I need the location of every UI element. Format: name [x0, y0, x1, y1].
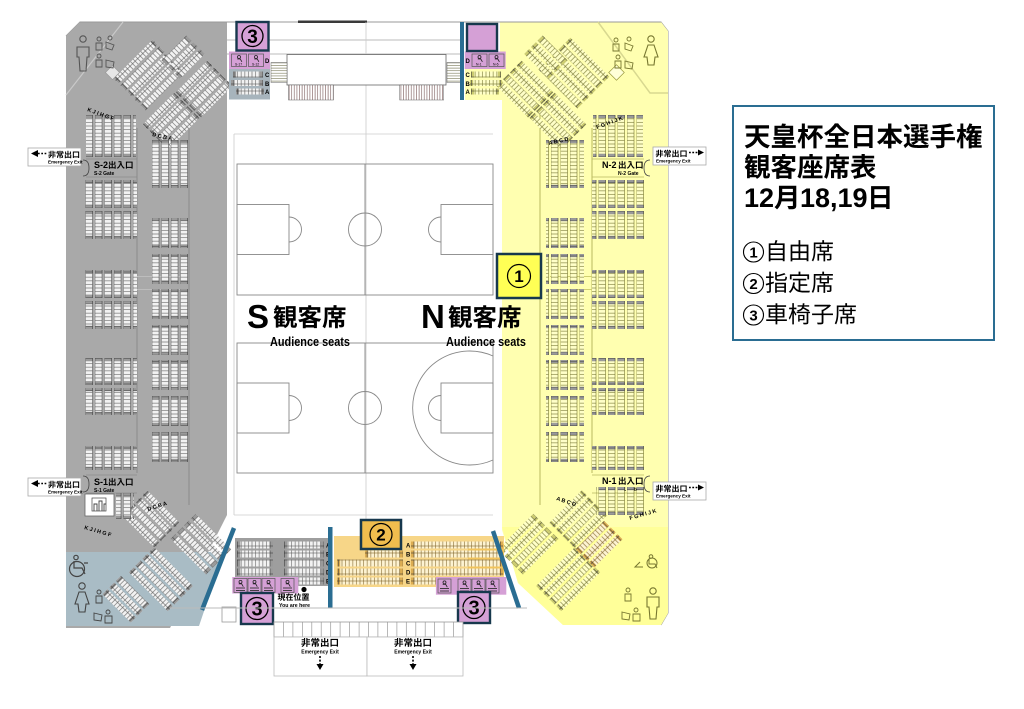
svg-text:Audience seats: Audience seats	[270, 335, 350, 349]
svg-text:B: B	[466, 82, 471, 88]
svg-text:B: B	[265, 82, 270, 88]
svg-text:S-12: S-12	[252, 63, 259, 67]
svg-text:1: 1	[514, 267, 523, 286]
svg-text:Emergency Exit: Emergency Exit	[48, 490, 83, 495]
svg-text:18,19: 18,19	[800, 183, 868, 213]
svg-text:C: C	[406, 562, 411, 568]
svg-text:1: 1	[749, 244, 757, 261]
svg-text:Audience seats: Audience seats	[446, 335, 526, 349]
svg-text:D: D	[406, 571, 411, 577]
svg-text:Emergency Exit: Emergency Exit	[656, 159, 691, 164]
svg-text:S-2 Gate: S-2 Gate	[94, 171, 115, 177]
svg-text:S-1 Gate: S-1 Gate	[94, 488, 115, 494]
svg-text:A: A	[466, 90, 471, 96]
svg-text:3: 3	[251, 599, 262, 621]
svg-text:N-1: N-1	[476, 63, 482, 67]
svg-text:A: A	[265, 90, 270, 96]
svg-text:N: N	[421, 298, 445, 335]
svg-text:2: 2	[376, 526, 385, 545]
svg-text:S: S	[247, 298, 269, 335]
svg-text:E: E	[406, 580, 410, 586]
svg-text:N-1: N-1	[602, 476, 617, 486]
svg-text:B: B	[406, 553, 411, 559]
svg-text:12: 12	[744, 183, 774, 213]
svg-text:3: 3	[247, 27, 258, 48]
svg-text:S-17: S-17	[235, 63, 242, 67]
svg-text:S-2: S-2	[94, 160, 108, 170]
svg-text:3: 3	[749, 307, 757, 324]
svg-text:D: D	[265, 59, 270, 65]
svg-text:C: C	[466, 73, 471, 79]
svg-text:N-6: N-6	[493, 63, 499, 67]
svg-text:A: A	[406, 544, 411, 550]
svg-text:D: D	[466, 59, 471, 65]
svg-text:N-2: N-2	[602, 160, 617, 170]
svg-text:3: 3	[468, 598, 479, 620]
svg-text:C: C	[265, 73, 270, 79]
svg-text:Emergency Exit: Emergency Exit	[394, 650, 432, 656]
svg-text:S-1: S-1	[94, 477, 108, 487]
svg-text:Emergency Exit: Emergency Exit	[301, 650, 339, 656]
svg-text:2: 2	[749, 276, 757, 293]
svg-text:Emergency Exit: Emergency Exit	[656, 494, 691, 499]
svg-text:N-2 Gate: N-2 Gate	[618, 171, 639, 177]
svg-text:Emergency Exit: Emergency Exit	[48, 160, 83, 165]
